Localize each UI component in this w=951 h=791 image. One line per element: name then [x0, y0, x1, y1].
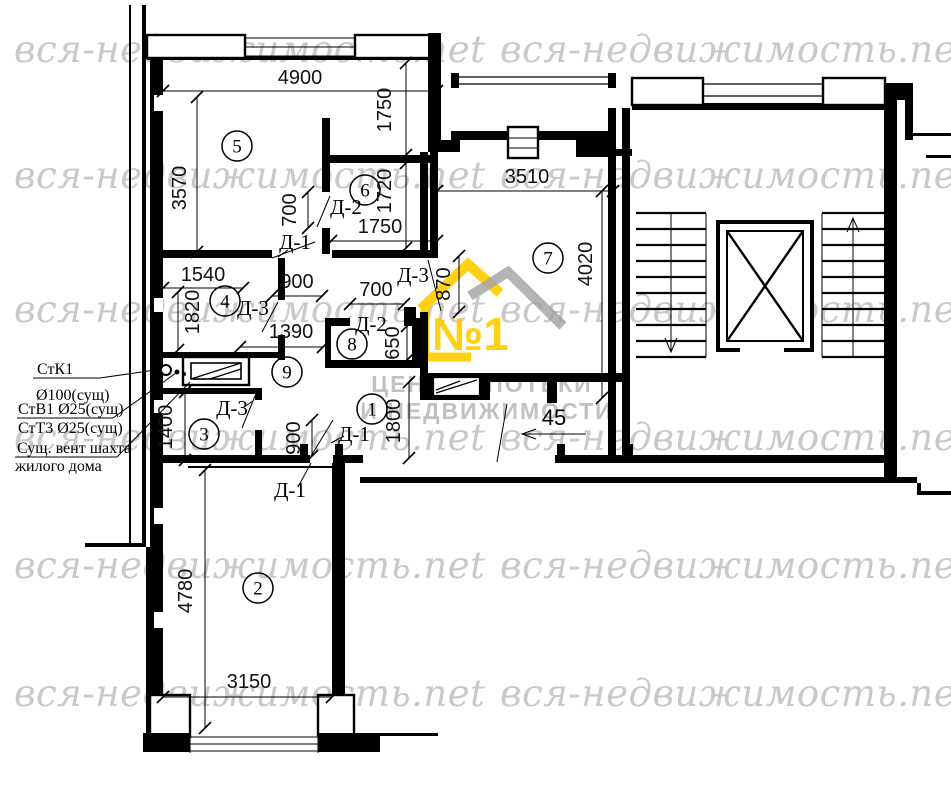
door-label: Д-1 [279, 230, 311, 254]
dimension-label: 3510 [505, 166, 550, 188]
dimension-label: 1540 [181, 264, 226, 286]
dimension-label: 870 [433, 267, 455, 300]
room-number-5: 5 [222, 131, 252, 161]
dimension: 4020 [575, 185, 608, 404]
vent-shaft-symbol-2 [433, 377, 480, 396]
dimension-label: 3570 [169, 166, 191, 211]
dimension-label: 700 [359, 279, 392, 301]
vent-shaft-label-2: жилого дома [14, 458, 102, 475]
dimension-label: 4900 [278, 67, 323, 89]
riser-label-stv1: СтВ1 Ø25(сущ) [18, 401, 124, 418]
dimension-label: 1750 [374, 88, 396, 133]
room-number-7: 7 [533, 243, 563, 273]
room-number-2: 2 [243, 573, 273, 603]
room-number-label: 7 [543, 249, 553, 270]
dimension-label: 900 [283, 421, 305, 454]
door-label: Д-2 [330, 195, 362, 219]
door-label: Д-3 [397, 263, 429, 287]
room-number-label: 8 [347, 335, 357, 356]
vent-shaft-symbol [183, 357, 249, 385]
dimension-label: 1750 [358, 216, 403, 238]
door-label: Д-2 [355, 312, 387, 336]
dimension: 1750 [374, 57, 412, 161]
door-label: Д-1 [338, 422, 370, 446]
dimension: 1820 [172, 286, 204, 356]
stairs-right-flight [822, 213, 884, 357]
dimension: 870 [433, 250, 465, 318]
room-number-label: 4 [220, 292, 230, 313]
room-number-4: 4 [210, 286, 240, 316]
dimension: 4780 [175, 464, 211, 734]
dimension: 700 [279, 186, 314, 234]
flat-number-group: 45 [522, 405, 586, 439]
dimension: 1800 [383, 376, 415, 464]
dimension: 3510 [431, 166, 619, 197]
room-number-label: 9 [282, 363, 292, 384]
door-label: Д-1 [274, 478, 306, 502]
dimension: 1720 [374, 157, 412, 254]
dimension: 3570 [169, 91, 203, 258]
room-number-label: 1 [367, 400, 377, 421]
dimension-label: 700 [279, 193, 301, 226]
dimension-label: 4780 [175, 569, 197, 614]
room-number-9: 9 [272, 357, 302, 387]
dimension-label: 1400 [155, 405, 177, 450]
dimension-label: 3150 [227, 671, 272, 693]
dimension: 900 [283, 414, 318, 462]
dimension-label: 1390 [269, 321, 314, 343]
dimension-label: 900 [280, 271, 313, 293]
door-label: Д-3 [237, 296, 269, 320]
dimension: 900 [266, 271, 328, 302]
door-label: Д-3 [216, 396, 248, 420]
room-number-label: 3 [199, 425, 209, 446]
elevator-shaft [718, 222, 812, 354]
flat-number: 45 [542, 405, 566, 430]
vent-shaft-label-1: Сущ. вент шахта [17, 440, 131, 457]
dimension: 4900 [157, 67, 443, 97]
room-number-3: 3 [189, 419, 219, 449]
riser-label-stk1: СтК1 [37, 361, 73, 378]
room-number-label: 5 [232, 137, 242, 158]
dimension-label: 1720 [374, 169, 396, 214]
dimension-label: 4020 [575, 242, 597, 287]
riser-label-stt3: СтТ3 Ø25(сущ) [18, 420, 123, 437]
stairs-left-flight [636, 213, 706, 357]
room-number-label: 2 [253, 579, 263, 600]
floor-plan-page: вся-недвижимость.netвся-недвижимость.net… [0, 0, 951, 791]
dimension-label: 1820 [182, 290, 204, 335]
floor-plan-drawing: СтК1 Ø100(сущ) СтВ1 Ø25(сущ) СтТ3 Ø25(су… [0, 0, 951, 791]
